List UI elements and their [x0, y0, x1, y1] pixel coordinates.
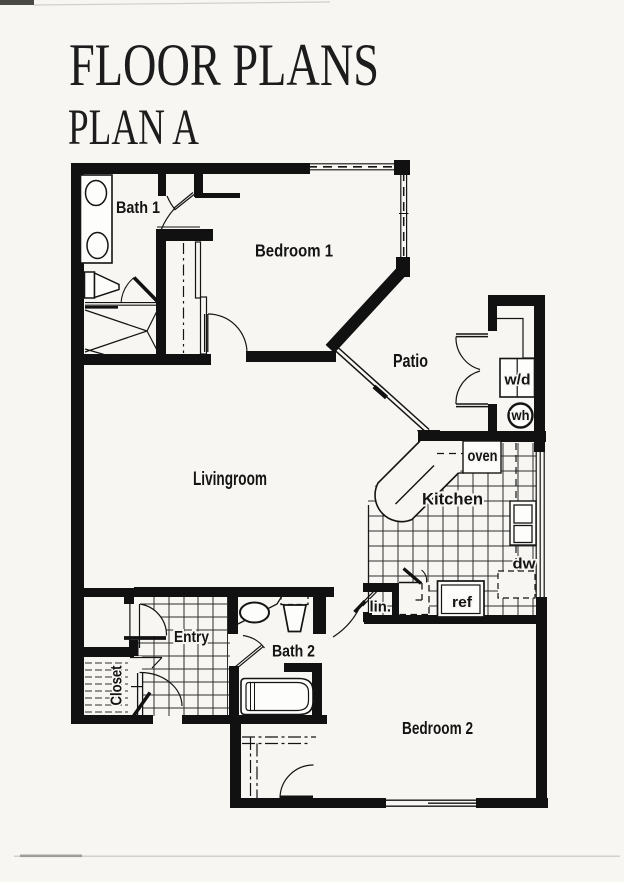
svg-text:FLOOR PLANS: FLOOR PLANS — [69, 32, 379, 98]
svg-text:PLAN A: PLAN A — [68, 100, 199, 156]
svg-text:wh: wh — [511, 408, 530, 423]
svg-text:ref: ref — [452, 594, 473, 611]
svg-text:Bedroom 1: Bedroom 1 — [255, 241, 333, 261]
svg-text:Livingroom: Livingroom — [193, 469, 267, 490]
svg-text:Bath 1: Bath 1 — [116, 198, 160, 217]
svg-text:lin.: lin. — [370, 599, 392, 616]
svg-text:Bedroom 2: Bedroom 2 — [402, 718, 473, 738]
svg-text:dw: dw — [513, 556, 536, 573]
svg-text:Bath 2: Bath 2 — [272, 642, 315, 661]
svg-text:Closet: Closet — [109, 666, 126, 706]
svg-text:w/d: w/d — [503, 372, 530, 389]
svg-text:Entry: Entry — [174, 629, 209, 646]
svg-text:Kitchen: Kitchen — [422, 491, 483, 509]
svg-text:Patio: Patio — [393, 350, 428, 371]
svg-text:oven: oven — [468, 448, 498, 465]
